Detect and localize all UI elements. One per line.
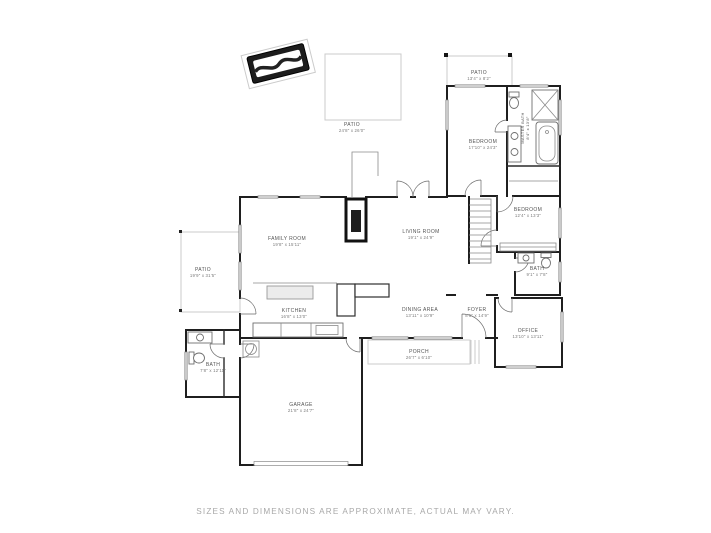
patio-center-outline (325, 54, 401, 120)
toilet-icon (189, 352, 205, 364)
room-dims-kitchen: 16'8" x 13'0" (281, 314, 307, 319)
room-dims-patio-left: 19'9" x 31'5" (190, 273, 216, 278)
closet-sliding-doors (500, 243, 556, 251)
kitchen-fixtures (253, 283, 389, 337)
hot-tub-icon (241, 39, 315, 88)
bathtub-icon (536, 122, 558, 164)
room-dims-bath-hall: 9'1" x 7'8" (527, 272, 548, 277)
patio-post-icon (508, 53, 512, 57)
floor-plan-drawing: PATIO 13'4" x 8'2" PATIO 24'8" x 26'0" P… (0, 0, 711, 533)
patio-post-icon (179, 230, 182, 233)
room-dims-office: 13'10" x 13'11" (512, 334, 543, 339)
fireplace-icon (346, 199, 366, 241)
porch-steps (471, 340, 479, 364)
kitchen-island (267, 286, 313, 299)
room-dims-bedroom-primary: 17'10" x 24'3" (469, 145, 498, 150)
room-dims-living-room: 19'1" x 24'9" (408, 235, 434, 240)
garage-door (254, 462, 348, 466)
room-dims-patio-top: 13'4" x 8'2" (467, 76, 491, 81)
down-bath-fixtures (188, 332, 212, 364)
kitchen-counter (337, 284, 355, 316)
patio-post-icon (444, 53, 448, 57)
room-dims-master-bath: 8'4" x 13'8" (525, 116, 530, 140)
room-dims-patio-center: 24'8" x 26'0" (339, 128, 365, 133)
room-dims-family-room: 19'8" x 15'11" (273, 242, 302, 247)
floor-plan-page: PATIO 13'4" x 8'2" PATIO 24'8" x 26'0" P… (0, 0, 711, 533)
master-bath-fixtures (508, 90, 558, 164)
windows (185, 85, 563, 380)
staircase (469, 197, 491, 263)
room-dims-bedroom2: 12'4" x 13'3" (515, 213, 541, 218)
toilet-icon (509, 92, 519, 109)
room-dims-bath-down: 7'8" x 12'11" (200, 368, 226, 373)
room-dims-dining-area: 13'11" x 10'9" (406, 313, 435, 318)
sink-vanity-icon (518, 253, 534, 263)
disclaimer-text: SIZES AND DIMENSIONS ARE APPROXIMATE, AC… (196, 507, 514, 516)
sink-vanity-icon (188, 332, 212, 343)
room-dims-foyer: 8'5" x 14'9" (465, 313, 489, 318)
door-arcs (210, 120, 529, 358)
room-dims-porch: 26'7" x 6'10" (406, 355, 432, 360)
kitchen-counter (355, 284, 389, 297)
patio-post-icon (179, 309, 182, 312)
room-dims-garage: 21'8" x 24'7" (288, 408, 314, 413)
vestibule-lines (352, 152, 378, 197)
exterior-walls (186, 86, 562, 465)
